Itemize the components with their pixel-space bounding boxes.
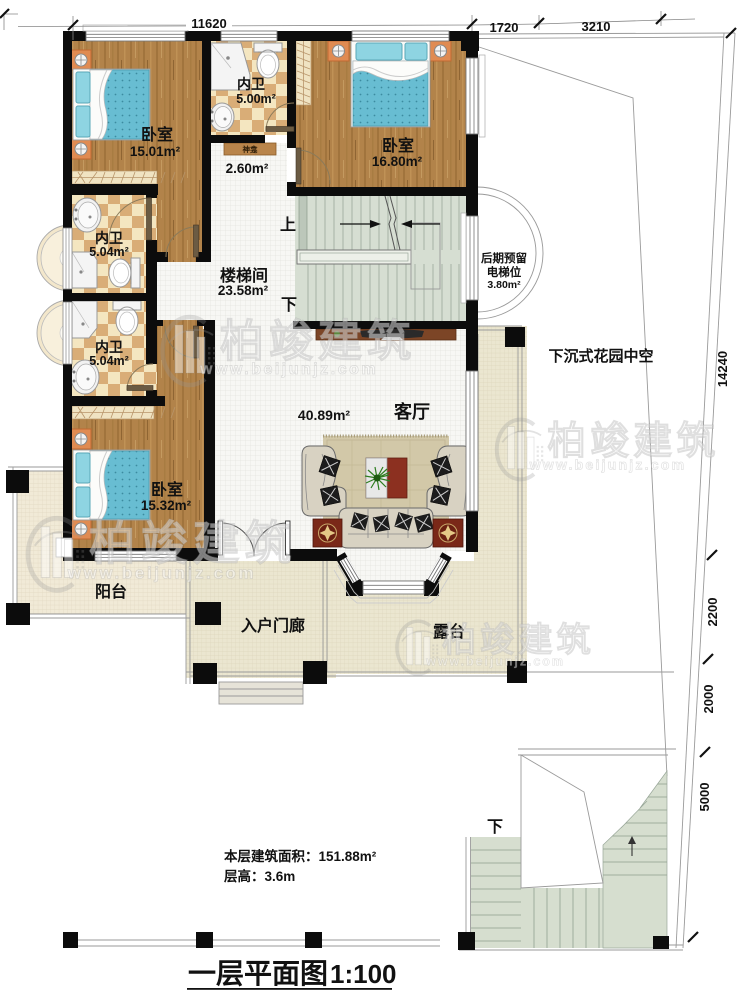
svg-text:15.32m²: 15.32m² xyxy=(141,498,192,513)
svg-text:电梯位: 电梯位 xyxy=(487,265,522,279)
svg-text:卧室: 卧室 xyxy=(151,480,183,499)
svg-text:2.60m²: 2.60m² xyxy=(226,161,269,176)
svg-text:1720: 1720 xyxy=(490,20,519,35)
svg-text:下: 下 xyxy=(487,819,503,836)
svg-text:下: 下 xyxy=(281,297,297,314)
svg-text:入户门廊: 入户门廊 xyxy=(241,616,305,635)
svg-text:16.80m²: 16.80m² xyxy=(372,154,423,169)
svg-text:本层建筑面积：151.88m²: 本层建筑面积：151.88m² xyxy=(224,848,377,864)
svg-text:2000: 2000 xyxy=(701,685,716,714)
svg-text:3210: 3210 xyxy=(582,19,611,34)
svg-text:23.58m²: 23.58m² xyxy=(218,283,269,298)
svg-text:5.00m²: 5.00m² xyxy=(236,92,276,106)
svg-text:内卫: 内卫 xyxy=(237,76,265,92)
svg-text:阳台: 阳台 xyxy=(95,582,127,601)
svg-text:1:100: 1:100 xyxy=(330,959,397,989)
svg-text:5.04m²: 5.04m² xyxy=(89,354,129,368)
svg-text:3.80m²: 3.80m² xyxy=(487,279,521,291)
svg-text:5000: 5000 xyxy=(697,783,712,812)
svg-text:卧室: 卧室 xyxy=(141,125,173,144)
svg-text:下沉式花园中空: 下沉式花园中空 xyxy=(548,347,653,365)
svg-text:40.89m²: 40.89m² xyxy=(298,407,350,423)
svg-text:内卫: 内卫 xyxy=(95,230,123,246)
svg-text:11620: 11620 xyxy=(191,16,226,31)
svg-text:神龛: 神龛 xyxy=(243,144,258,154)
svg-text:一层平面图: 一层平面图 xyxy=(188,958,328,989)
svg-text:内卫: 内卫 xyxy=(95,339,123,355)
svg-text:14240: 14240 xyxy=(715,351,730,387)
svg-text:层高：3.6m: 层高：3.6m xyxy=(224,868,295,884)
svg-text:5.04m²: 5.04m² xyxy=(89,245,129,259)
svg-text:卧室: 卧室 xyxy=(382,136,414,155)
svg-text:客厅: 客厅 xyxy=(394,401,430,422)
svg-text:后期预留: 后期预留 xyxy=(481,251,527,265)
svg-text:15.01m²: 15.01m² xyxy=(130,144,181,159)
svg-text:2200: 2200 xyxy=(705,598,720,627)
svg-text:上: 上 xyxy=(280,216,296,234)
